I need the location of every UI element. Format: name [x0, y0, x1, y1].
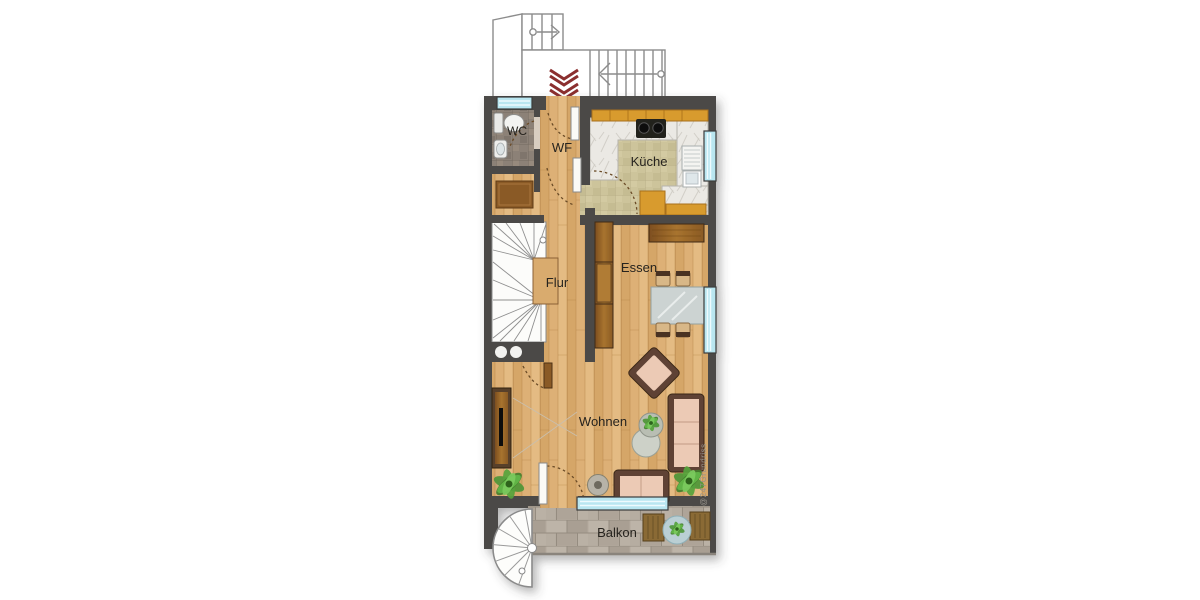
window-balcony-slider — [577, 497, 668, 510]
kitchen-counter-bottom — [662, 186, 708, 205]
room-label-balkon: Balkon — [597, 525, 637, 540]
wall-flur-essen — [585, 208, 595, 352]
entry-door-leaf — [571, 107, 579, 140]
exterior-staircase-icon — [493, 14, 665, 98]
wall-wc-bottom — [484, 166, 534, 174]
balcony-right-wall — [710, 505, 716, 555]
shaft-symbol-dot — [495, 346, 507, 358]
watermark-text: @247Grundriss — [699, 443, 708, 506]
spiral-staircase-icon — [493, 509, 537, 587]
room-label-essen: Essen — [621, 260, 657, 275]
sideboard — [649, 224, 704, 242]
floor-plan-svg: WC WF Küche Flur Essen Wohnen Balkon @24… — [0, 0, 1200, 600]
kitchen-cabinet-bottom2 — [666, 204, 706, 215]
wall-stair-top — [484, 215, 544, 223]
toilet-tank — [494, 113, 503, 133]
room-label-wohnen: Wohnen — [579, 414, 627, 429]
floor-plan-canvas: WC WF Küche Flur Essen Wohnen Balkon @24… — [0, 0, 1200, 600]
room-label-kueche: Küche — [631, 154, 668, 169]
room-label-flur: Flur — [546, 275, 569, 290]
balcony-furniture — [643, 512, 710, 544]
wf-door-leaf — [573, 158, 581, 192]
balcony-door-leaf — [539, 463, 547, 504]
tv-icon — [499, 408, 503, 446]
window-wc — [497, 97, 532, 109]
room-label-wc: WC — [507, 124, 527, 138]
shaft-symbol-dot — [510, 346, 522, 358]
room-label-wf: WF — [552, 140, 572, 155]
kitchen-cabinet-bottom — [640, 191, 665, 215]
wc-door-opening — [534, 117, 540, 149]
wohnen-door-leaf — [544, 363, 552, 388]
doormat — [496, 181, 533, 208]
